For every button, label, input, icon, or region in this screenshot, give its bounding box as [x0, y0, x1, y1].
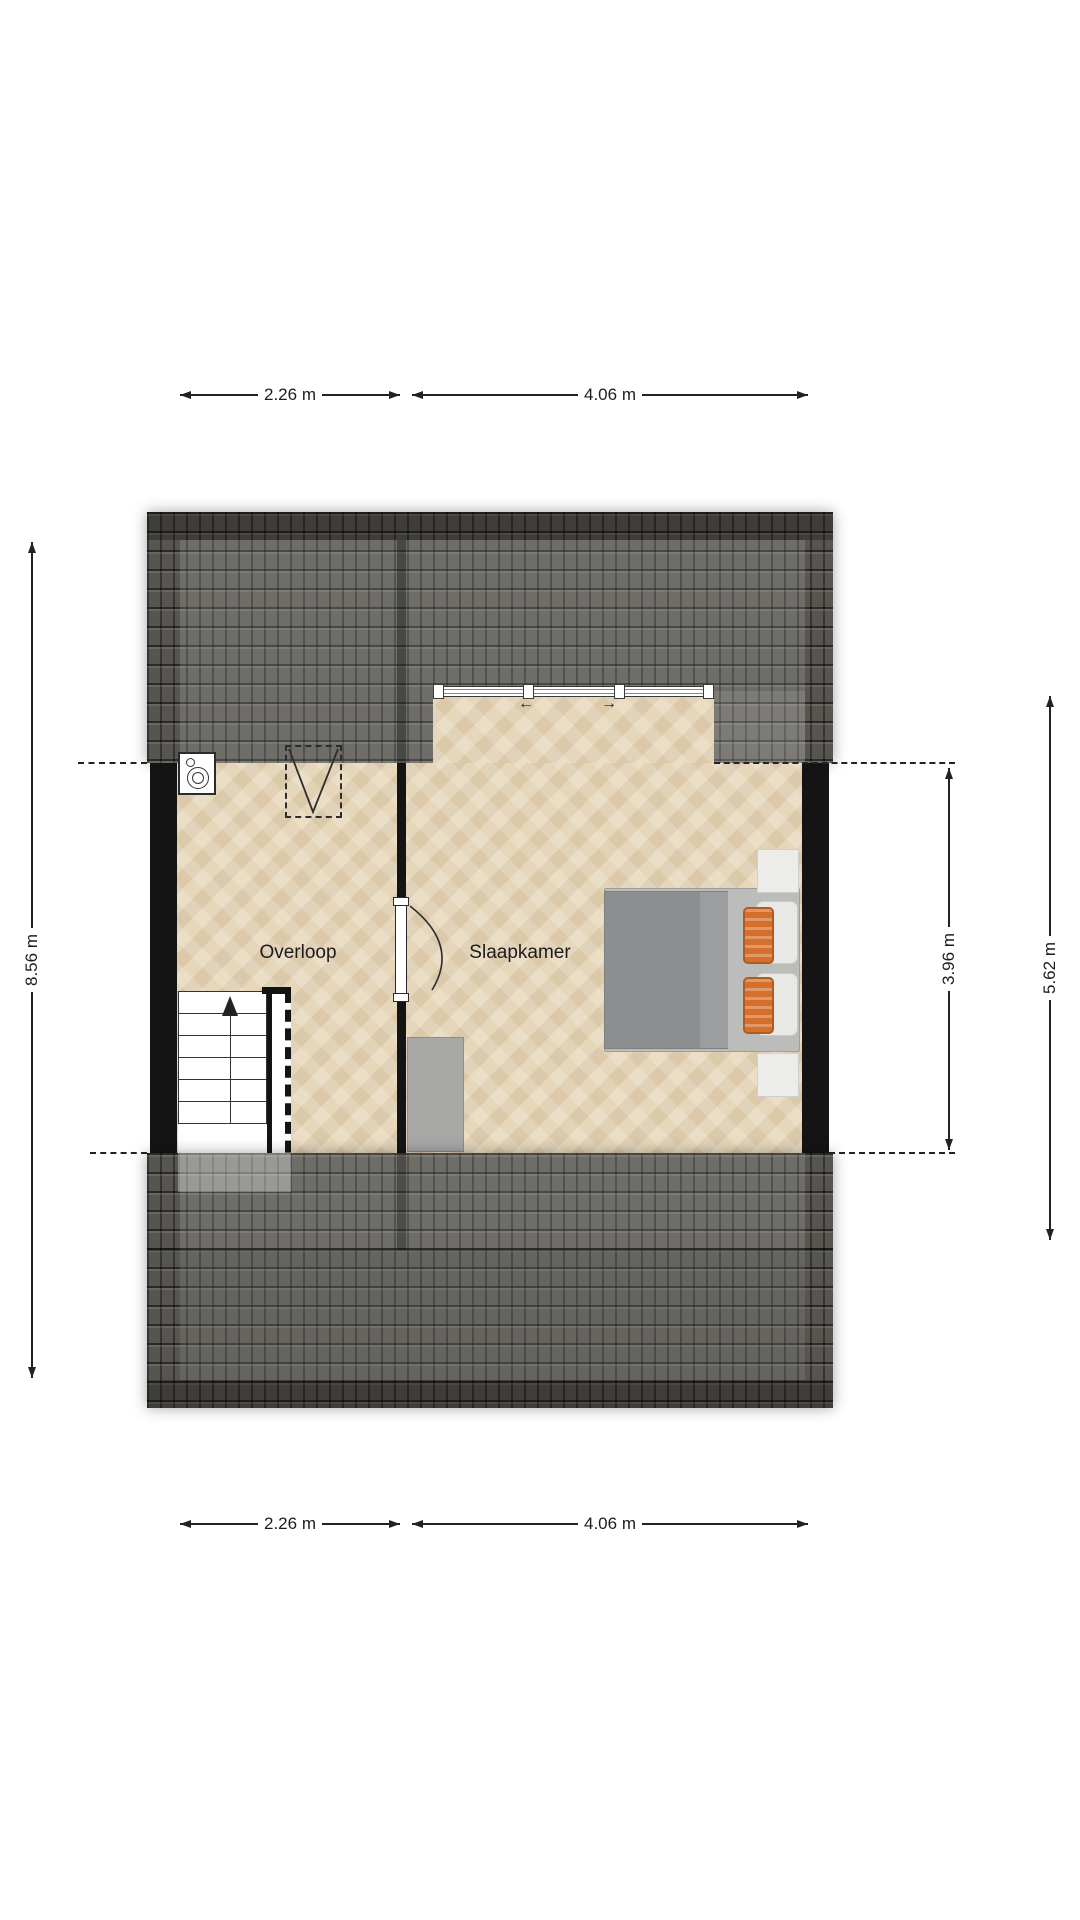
roof-bottom-lower-shade	[180, 1251, 805, 1380]
dim-bottom-1: 2.26 m	[180, 1515, 400, 1532]
window-slide-right-icon: →	[601, 696, 617, 712]
wall-left	[150, 763, 177, 1153]
dim-left-label: 8.56 m	[22, 928, 42, 992]
roof-hatch-v-icon	[285, 745, 342, 818]
roof-bottom-eave-band	[147, 1380, 833, 1408]
stairs-balustrade-cap	[262, 987, 291, 994]
bed-duvet-fold	[700, 892, 728, 1048]
bed-cushion-orange-bottom	[743, 977, 774, 1034]
dim-top-2: 4.06 m	[412, 386, 808, 403]
window-glass-lines	[434, 689, 713, 694]
wall-middle-lower	[397, 997, 406, 1153]
room-label-slaapkamer: Slaapkamer	[469, 942, 570, 964]
kneewall-dash-upper-left	[78, 762, 147, 764]
bed-cushion-orange-top	[743, 907, 774, 964]
roof-top-eave-band	[147, 512, 833, 540]
roof-bottom-stairwell-ghost	[178, 1153, 291, 1192]
dim-top-1-label: 2.26 m	[258, 385, 322, 405]
boiler-drum-inner-circle	[192, 772, 204, 784]
window-mullion	[433, 684, 444, 699]
dim-left: 8.56 m	[23, 542, 40, 1378]
kneewall-dash-lower-right	[829, 1152, 955, 1154]
dormer-floor	[433, 696, 714, 763]
roof-top-dormer-side-shade	[714, 691, 805, 763]
window-mullion	[703, 684, 714, 699]
boiler-small-circle	[186, 758, 195, 767]
kneewall-dash-lower-left	[90, 1152, 147, 1154]
dim-right-2-label: 5.62 m	[1040, 936, 1060, 1000]
stairs-center-line	[230, 1008, 231, 1123]
dresser	[407, 1037, 464, 1152]
stairs-up-arrow-icon	[222, 996, 238, 1016]
room-label-overloop: Overloop	[259, 942, 336, 964]
dim-right-1-label: 3.96 m	[939, 927, 959, 991]
floorplan-canvas: ← → Overloop Slaapkamer	[0, 0, 1080, 1920]
dim-right-1: 3.96 m	[940, 768, 957, 1150]
door-swing-arc-icon	[406, 898, 468, 1000]
nightstand-bottom	[757, 1053, 799, 1097]
dormer-window	[433, 686, 714, 697]
dim-top-1: 2.26 m	[180, 386, 400, 403]
dim-bottom-1-label: 2.26 m	[258, 1514, 322, 1534]
dim-right-2: 5.62 m	[1041, 696, 1058, 1240]
roof-bottom-wall-ghost	[397, 1153, 406, 1250]
dim-bottom-2-label: 4.06 m	[578, 1514, 642, 1534]
kneewall-dash-upper-right	[714, 762, 955, 764]
wall-middle-upper	[397, 763, 406, 902]
dim-top-2-label: 4.06 m	[578, 385, 642, 405]
window-slide-left-icon: ←	[518, 696, 534, 712]
wall-right	[802, 763, 829, 1153]
roof-wall-ghost	[397, 540, 406, 763]
nightstand-top	[757, 849, 799, 893]
boiler-unit	[178, 752, 216, 795]
dim-bottom-2: 4.06 m	[412, 1515, 808, 1532]
